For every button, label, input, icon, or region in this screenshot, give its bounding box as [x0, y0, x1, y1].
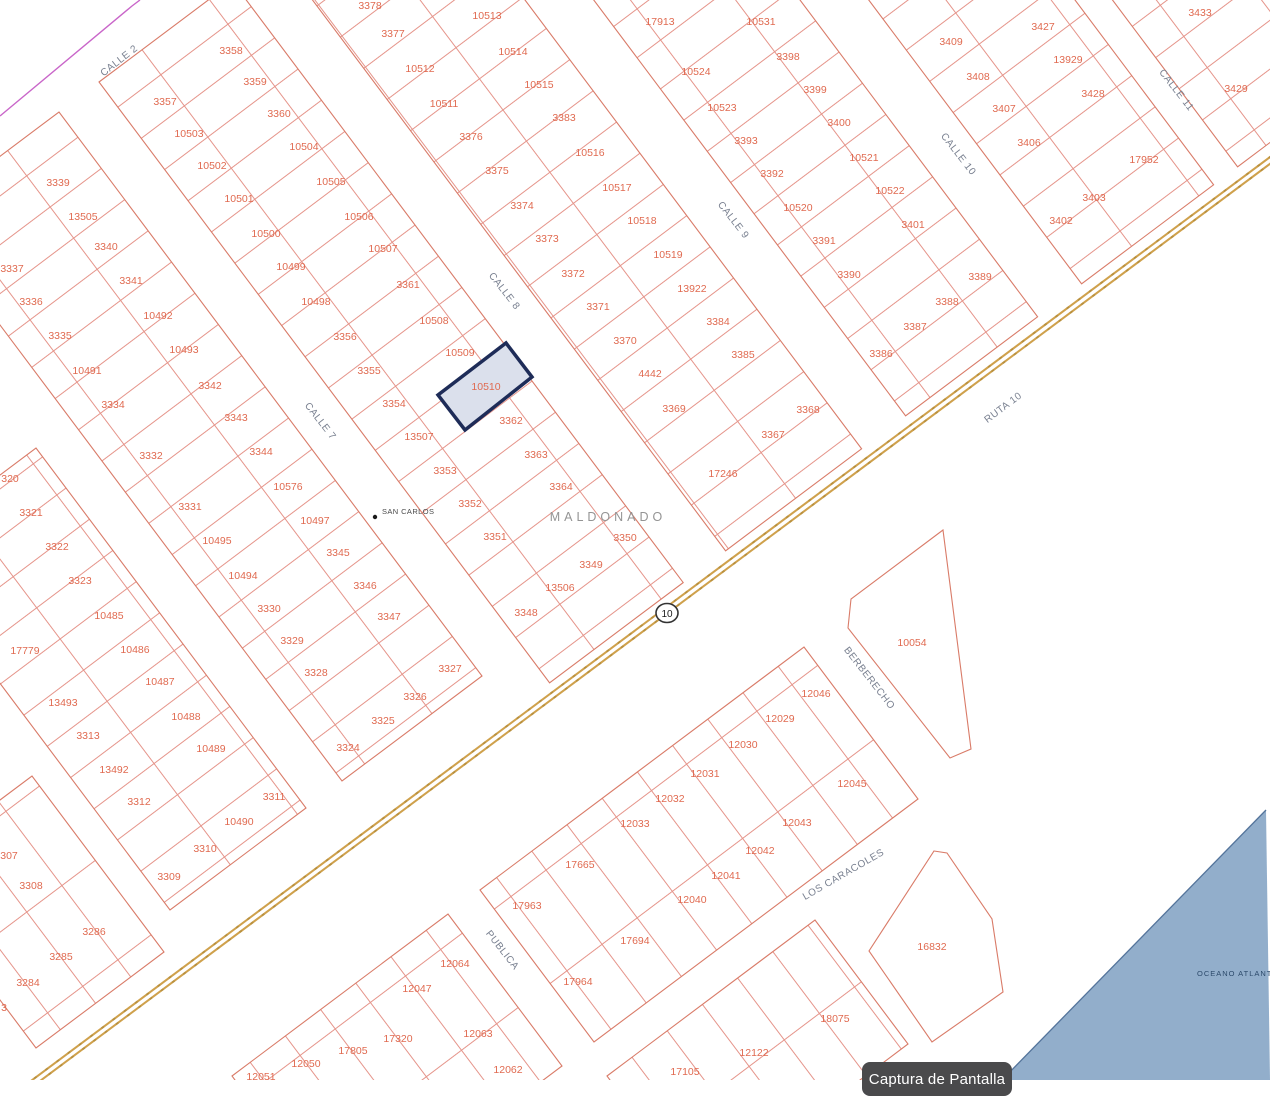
- parcel-label: 3370: [613, 335, 637, 347]
- parcel-label: 10503: [174, 128, 203, 140]
- parcel-label: 3384: [706, 316, 730, 328]
- parcel-label-partial: 307: [0, 850, 18, 862]
- town-label: SAN CARLOS: [382, 507, 434, 516]
- parcel-label: 10508: [419, 315, 448, 327]
- parcel-label: 17805: [338, 1045, 367, 1057]
- parcel-label: 10511: [430, 98, 459, 110]
- parcel-label: 3328: [304, 667, 328, 679]
- parcel-label: 17913: [645, 16, 674, 28]
- parcel-label: 3393: [734, 135, 758, 147]
- parcel-label: 10514: [498, 46, 527, 58]
- parcel-label: 3284: [16, 977, 40, 989]
- parcel-block: [232, 914, 562, 1080]
- parcel-label: 10516: [575, 147, 604, 159]
- parcel-label: 13493: [48, 697, 77, 709]
- parcel-label: 3357: [153, 96, 177, 108]
- route-10-badge: 10: [656, 604, 678, 623]
- parcel-label: 12043: [782, 817, 811, 829]
- parcel-label: 12050: [291, 1058, 320, 1070]
- parcel-label: 12063: [463, 1028, 492, 1040]
- parcel-label: 12033: [620, 818, 649, 830]
- parcel-label: 3399: [803, 84, 827, 96]
- parcel-label: 10488: [171, 711, 200, 723]
- parcel-label-partial: 3: [1, 1002, 7, 1014]
- parcel-label: 3427: [1031, 21, 1055, 33]
- parcel-label: 10506: [344, 211, 373, 223]
- parcel-label: 17665: [565, 859, 594, 871]
- parcel-label: 3336: [19, 296, 43, 308]
- parcel-label: 13505: [68, 211, 97, 223]
- ocean-label: OCEANO ATLANTICO: [1197, 969, 1270, 978]
- city-label: MALDONADO: [550, 510, 667, 524]
- parcel-label: 3386: [869, 348, 893, 360]
- parcel-label: 3337: [0, 263, 24, 275]
- parcel-label: 17105: [670, 1066, 699, 1078]
- parcel-label: 3407: [992, 103, 1016, 115]
- parcel-label: 3361: [396, 279, 420, 291]
- town-point-icon: [373, 515, 377, 519]
- parcel-label: 3388: [935, 296, 959, 308]
- parcel-label: 10521: [849, 152, 878, 164]
- parcel-label: 10513: [472, 10, 501, 22]
- parcel-label: 3323: [68, 575, 92, 587]
- parcel-label: 10487: [145, 676, 174, 688]
- parcel-label: 10054: [897, 637, 926, 649]
- parcel-label: 12045: [837, 778, 866, 790]
- parcel-label: 3363: [524, 449, 548, 461]
- parcel-label: 10500: [251, 228, 280, 240]
- parcel-label: 10522: [875, 185, 904, 197]
- parcel-label: 3342: [198, 380, 222, 392]
- parcel-label: 3335: [48, 330, 72, 342]
- parcel-label: 3377: [381, 28, 405, 40]
- parcel-label: 3332: [139, 450, 163, 462]
- parcel-label: 3308: [19, 880, 43, 892]
- parcel-label: 10502: [197, 160, 226, 172]
- parcel-label: 13507: [404, 431, 433, 443]
- parcel-label: 3327: [438, 663, 462, 675]
- parcel-label: 3385: [731, 349, 755, 361]
- parcel-label: 3387: [903, 321, 927, 333]
- parcel-label: 10523: [707, 102, 736, 114]
- parcel-label: 3353: [433, 465, 457, 477]
- parcel-label: 4442: [638, 368, 662, 380]
- parcel-label: 12031: [690, 768, 719, 780]
- parcel-label: 3360: [267, 108, 291, 120]
- parcel-label: 10493: [169, 344, 198, 356]
- parcel-label: 3349: [579, 559, 603, 571]
- parcel-label: 3285: [49, 951, 73, 963]
- parcel-label: 17952: [1129, 154, 1158, 166]
- parcel-label: 3392: [760, 168, 784, 180]
- parcel-label: 10490: [224, 816, 253, 828]
- parcel-label: 17694: [620, 935, 649, 947]
- parcel-label: 3355: [357, 365, 381, 377]
- parcel-label: 3311: [263, 791, 286, 803]
- parcel-label: 17320: [383, 1033, 412, 1045]
- parcel-label: 3309: [157, 871, 181, 883]
- parcel-label: 3356: [333, 331, 357, 343]
- parcel-label: 3345: [326, 547, 350, 559]
- parcel-label: 12042: [745, 845, 774, 857]
- parcel-label: 10499: [276, 261, 305, 273]
- parcel-label: 10491: [72, 365, 101, 377]
- parcel-label: 10498: [301, 296, 330, 308]
- parcel-label: 10494: [228, 570, 257, 582]
- parcel-label: 3369: [662, 403, 686, 415]
- parcel-label: 3376: [459, 131, 483, 143]
- parcel-label: 18075: [820, 1013, 849, 1025]
- parcel-label: 3373: [535, 233, 559, 245]
- parcel-label: 10520: [783, 202, 812, 214]
- parcel-label: 10515: [524, 79, 553, 91]
- parcel-label: 10485: [94, 610, 123, 622]
- parcel-label: 10495: [202, 535, 231, 547]
- parcel-label: 10492: [143, 310, 172, 322]
- cadastral-map-canvas[interactable]: 1051033583359335733601050310504105021050…: [0, 0, 1270, 1080]
- parcel-label: 13922: [677, 283, 706, 295]
- parcel-label: 3329: [280, 635, 304, 647]
- parcel-label: 3351: [483, 531, 507, 543]
- parcel-label: 10489: [196, 743, 225, 755]
- parcel-label: 12030: [728, 739, 757, 751]
- parcel-label: 13506: [545, 582, 574, 594]
- parcel-label: 3433: [1188, 7, 1212, 19]
- parcel-label: 3339: [46, 177, 70, 189]
- parcel-label: 13929: [1053, 54, 1082, 66]
- parcel-label: 3344: [249, 446, 273, 458]
- parcel-label: 3346: [353, 580, 377, 592]
- parcel-label: 12040: [677, 894, 706, 906]
- parcel-label: 10531: [746, 16, 775, 28]
- parcel-label: 12064: [440, 958, 469, 970]
- parcel-label: 3350: [613, 532, 637, 544]
- parcel-label: 3402: [1049, 215, 1073, 227]
- parcel-label: 3352: [458, 498, 482, 510]
- parcel-label: 3398: [776, 51, 800, 63]
- parcel-label: 3403: [1082, 192, 1106, 204]
- parcel-label: 17779: [10, 645, 39, 657]
- parcel-label: 3364: [549, 481, 573, 493]
- screenshot-capture-button[interactable]: Captura de Pantalla: [862, 1062, 1012, 1096]
- parcel-label: 3326: [403, 691, 427, 703]
- street-label: CALLE 9: [715, 200, 751, 242]
- parcel-label: 3286: [82, 926, 106, 938]
- parcel-label: 12051: [246, 1071, 275, 1080]
- parcel-label: 3362: [499, 415, 523, 427]
- parcel-label: 10519: [653, 249, 682, 261]
- parcel-label: 3378: [358, 0, 382, 12]
- parcel-label: 3324: [336, 742, 360, 754]
- parcel-label: 3347: [377, 611, 401, 623]
- parcel-label: 10509: [445, 347, 474, 359]
- parcel-label: 10497: [300, 515, 329, 527]
- parcel-label: 3409: [939, 36, 963, 48]
- parcel-label: 3312: [127, 796, 151, 808]
- parcel-label: 3371: [586, 301, 610, 313]
- parcel-label: 3310: [193, 843, 217, 855]
- street-label: CALLE 8: [486, 271, 522, 313]
- parcel-label: 12041: [711, 870, 740, 882]
- parcel-label: 3354: [382, 398, 406, 410]
- parcel-label: 3313: [76, 730, 100, 742]
- map-svg: 1051033583359335733601050310504105021050…: [0, 0, 1270, 1080]
- parcel-label: 3322: [45, 541, 69, 553]
- parcel-label: 3408: [966, 71, 990, 83]
- parcel-label: 3375: [485, 165, 509, 177]
- parcel-label: 3429: [1224, 83, 1248, 95]
- parcel-label: 10501: [224, 193, 253, 205]
- parcel-label: 12046: [801, 688, 830, 700]
- parcel-label: 3348: [514, 607, 538, 619]
- parcel-label: 10524: [681, 66, 710, 78]
- parcel-label: 3406: [1017, 137, 1041, 149]
- parcel-label: 12122: [739, 1047, 768, 1059]
- parcel-label-partial: 320: [1, 473, 19, 485]
- parcel-label: 3367: [761, 429, 785, 441]
- street-label: CALLE 7: [302, 401, 338, 443]
- parcel-label: 3401: [901, 219, 925, 231]
- parcel-label: 3331: [178, 501, 202, 513]
- highlighted-parcel-label: 10510: [471, 381, 500, 393]
- parcel-label: 3341: [119, 275, 143, 287]
- parcel-label: 17963: [512, 900, 541, 912]
- parcel-label: 10486: [120, 644, 149, 656]
- street-label: RUTA 10: [983, 390, 1025, 425]
- parcel-label: 3330: [257, 603, 281, 615]
- parcel-label: 3343: [224, 412, 248, 424]
- parcel-label: 17246: [708, 468, 737, 480]
- parcel-label: 12032: [655, 793, 684, 805]
- parcel-label: 12029: [765, 713, 794, 725]
- parcel-label: 3321: [19, 507, 43, 519]
- parcel-label: 3390: [837, 269, 861, 281]
- parcel-label: 3368: [796, 404, 820, 416]
- parcel-label: 13492: [99, 764, 128, 776]
- parcel-label: 3325: [371, 715, 395, 727]
- parcel-label: 10504: [289, 141, 318, 153]
- parcel-label: 10512: [405, 63, 434, 75]
- parcel-label: 12062: [493, 1064, 522, 1076]
- parcel-label: 3391: [812, 235, 836, 247]
- parcel-label: 3389: [968, 271, 992, 283]
- parcel-label: 3383: [552, 112, 576, 124]
- parcel-label: 10518: [627, 215, 656, 227]
- parcel-label: 17964: [563, 976, 592, 988]
- parcel-label: 10576: [273, 481, 302, 493]
- parcel-label: 10507: [368, 243, 397, 255]
- parcel-label: 3358: [219, 45, 243, 57]
- parcel-label: 3372: [561, 268, 585, 280]
- parcel-label: 3359: [243, 76, 267, 88]
- parcel-label: 12047: [402, 983, 431, 995]
- svg-text:10: 10: [661, 609, 673, 620]
- parcel-label: 3334: [101, 399, 125, 411]
- parcel-label: 10505: [316, 176, 345, 188]
- parcel-label: 10517: [602, 182, 631, 194]
- parcel-label: 3400: [827, 117, 851, 129]
- parcel-label: 3374: [510, 200, 534, 212]
- parcel-label: 3428: [1081, 88, 1105, 100]
- parcel-label: 3340: [94, 241, 118, 253]
- parcel-label: 16832: [917, 941, 946, 953]
